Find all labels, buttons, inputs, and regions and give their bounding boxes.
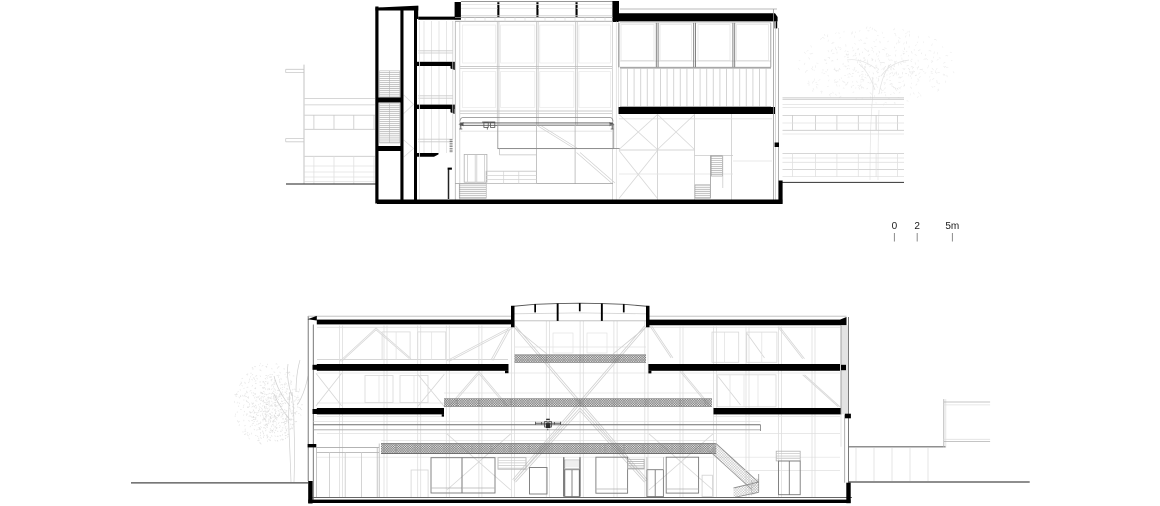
svg-text:0: 0 xyxy=(892,221,898,232)
svg-text:2: 2 xyxy=(914,221,920,232)
svg-text:5m: 5m xyxy=(945,221,959,232)
